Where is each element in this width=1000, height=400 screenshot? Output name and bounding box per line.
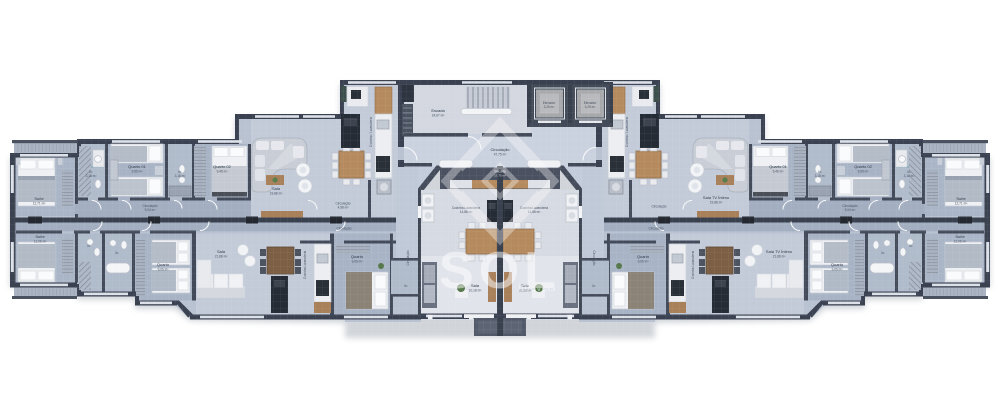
svg-text:Sala TV Íntimo: Sala TV Íntimo xyxy=(766,249,793,254)
svg-text:19,88 m²: 19,88 m² xyxy=(710,201,723,205)
svg-text:Quarto: Quarto xyxy=(351,254,364,259)
svg-text:12,06 m²: 12,06 m² xyxy=(34,240,47,244)
svg-text:3,25 m²: 3,25 m² xyxy=(544,105,555,109)
svg-text:l.b.: l.b. xyxy=(592,284,596,288)
svg-text:Cozinha Lavanderia: Cozinha Lavanderia xyxy=(691,251,695,280)
svg-text:12,06 m²: 12,06 m² xyxy=(954,240,967,244)
svg-text:l.b.: l.b. xyxy=(909,244,913,248)
svg-text:47,75 m²: 47,75 m² xyxy=(494,153,507,157)
svg-text:9,06 m²: 9,06 m² xyxy=(352,260,363,264)
svg-text:3,18 m²: 3,18 m² xyxy=(815,174,826,178)
svg-text:9,55 m²: 9,55 m² xyxy=(132,170,143,174)
svg-text:Quarto 02: Quarto 02 xyxy=(854,164,873,169)
svg-text:9,06 m²: 9,06 m² xyxy=(158,268,169,272)
svg-text:imóveis: imóveis xyxy=(518,282,556,294)
svg-text:3,25 m²: 3,25 m² xyxy=(585,105,596,109)
svg-text:9,06 m²: 9,06 m² xyxy=(832,268,843,272)
svg-text:Quarto: Quarto xyxy=(831,262,844,267)
svg-text:12,71 m²: 12,71 m² xyxy=(33,202,46,206)
svg-text:3,18 m²: 3,18 m² xyxy=(86,174,97,178)
svg-text:Sala TV Íntimo: Sala TV Íntimo xyxy=(703,195,730,200)
svg-text:24,67 m²: 24,67 m² xyxy=(432,114,445,118)
svg-text:Suíte: Suíte xyxy=(956,196,966,201)
svg-text:Cozinha Lavanderia: Cozinha Lavanderia xyxy=(303,251,307,280)
svg-text:9,55 m²: 9,55 m² xyxy=(858,170,869,174)
svg-text:Quarto 01: Quarto 01 xyxy=(128,164,147,169)
svg-text:Cozinha / Lavanderia: Cozinha / Lavanderia xyxy=(625,117,629,147)
svg-text:l.b.: l.b. xyxy=(87,244,91,248)
svg-text:Cozinha / Lavanderia: Cozinha / Lavanderia xyxy=(369,117,373,147)
svg-text:Suíte: Suíte xyxy=(34,196,44,201)
svg-text:21,88 m²: 21,88 m² xyxy=(773,255,786,259)
svg-text:Circulação: Circulação xyxy=(592,250,596,265)
svg-text:9,46 m²: 9,46 m² xyxy=(217,170,228,174)
svg-text:3,18 m²: 3,18 m² xyxy=(904,174,915,178)
svg-text:Circulação: Circulação xyxy=(648,227,663,231)
svg-text:21,88 m²: 21,88 m² xyxy=(215,255,228,259)
svg-text:Quarto 01: Quarto 01 xyxy=(769,164,788,169)
svg-text:3,18 m²: 3,18 m² xyxy=(175,174,186,178)
svg-text:Escada: Escada xyxy=(431,108,445,113)
svg-text:l.b.: l.b. xyxy=(404,284,408,288)
svg-text:Circulação: Circulação xyxy=(406,250,410,265)
svg-text:l.b.: l.b. xyxy=(115,251,119,255)
svg-text:Circulação: Circulação xyxy=(336,227,351,231)
svg-text:5,04 m²: 5,04 m² xyxy=(145,208,156,212)
svg-text:17,75 m²: 17,75 m² xyxy=(494,174,506,178)
svg-text:19,88 m²: 19,88 m² xyxy=(270,192,283,196)
svg-text:9,06 m²: 9,06 m² xyxy=(638,260,649,264)
svg-text:Quarto 02: Quarto 02 xyxy=(213,164,232,169)
svg-text:l.b.: l.b. xyxy=(881,251,885,255)
svg-text:9,46 m²: 9,46 m² xyxy=(773,170,784,174)
svg-text:Circulação: Circulação xyxy=(651,205,666,209)
svg-text:12,71 m²: 12,71 m² xyxy=(955,202,968,206)
svg-text:Sala: Sala xyxy=(272,186,281,191)
svg-text:Quarto: Quarto xyxy=(637,254,650,259)
svg-text:Suíte: Suíte xyxy=(35,234,45,239)
svg-text:5,04 m²: 5,04 m² xyxy=(845,208,856,212)
svg-text:Quarto: Quarto xyxy=(157,262,170,267)
svg-text:4,98 m²: 4,98 m² xyxy=(338,206,349,210)
svg-text:Suíte: Suíte xyxy=(955,234,965,239)
svg-text:Circulação: Circulação xyxy=(491,147,511,152)
svg-text:Sala: Sala xyxy=(217,249,226,254)
